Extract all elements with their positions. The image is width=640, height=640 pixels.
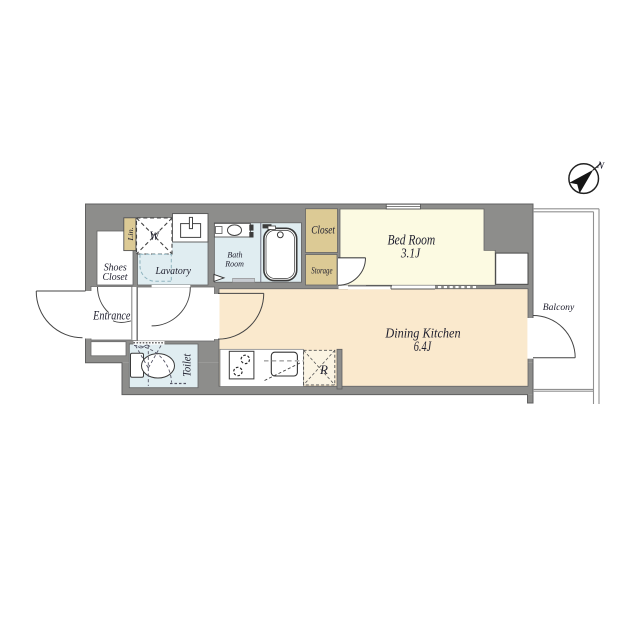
svg-text:Toilet: Toilet [182,353,194,377]
svg-text:Storage: Storage [311,267,332,277]
svg-text:R: R [319,362,328,377]
svg-text:Closet: Closet [103,271,129,283]
svg-text:Bath: Bath [227,250,242,259]
svg-text:Room: Room [224,259,244,268]
svg-text:Balcony: Balcony [543,303,575,313]
svg-text:6.4J: 6.4J [414,339,432,355]
svg-text:Lin.: Lin. [126,227,135,242]
svg-text:Closet: Closet [311,225,335,237]
svg-text:Lavatory: Lavatory [155,265,191,277]
svg-text:3.1J: 3.1J [400,247,421,262]
svg-text:Entrance: Entrance [92,308,131,322]
svg-text:W: W [149,229,160,243]
